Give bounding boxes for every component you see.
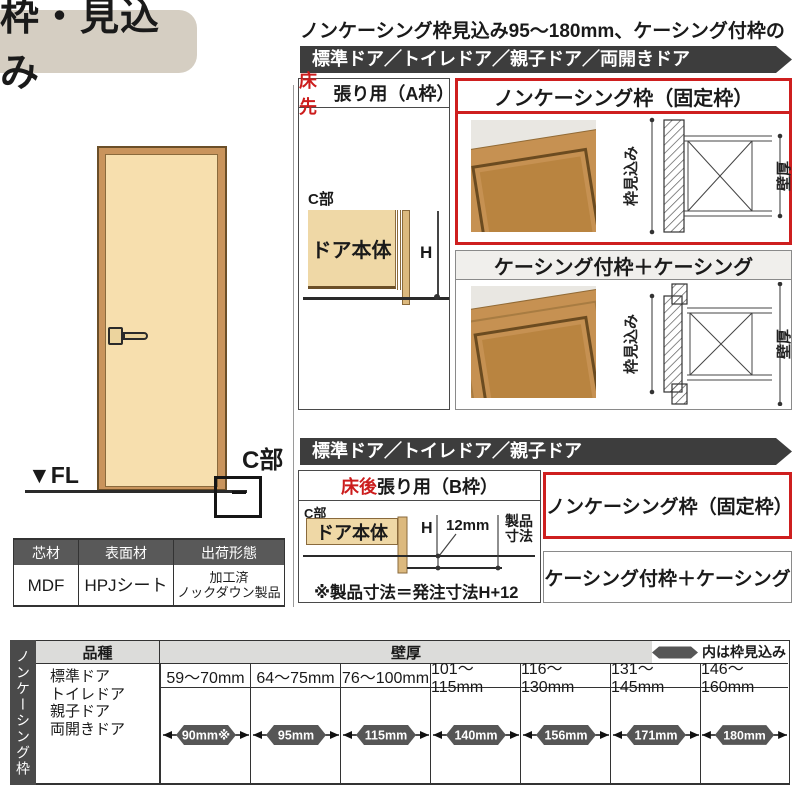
material-header-core: 芯材 — [13, 540, 79, 565]
door-types-bar-top: 標準ドア／トイレドア／親子ドア／両開きドア — [300, 46, 792, 73]
section-a-header-rest: 張り用（A枠） — [333, 80, 449, 106]
depth-badge: 140mm — [432, 723, 520, 747]
frame-depth-cell: 95mm — [250, 688, 340, 783]
section-a-header-red: 床先 — [299, 67, 333, 119]
door-figure-panel — [105, 154, 218, 487]
catalog-page: 枠・見込み ノンケーシング枠見込み95～180mm、ケーシング付枠の場合 標準ド… — [0, 0, 800, 800]
wall-range-cell: 64～75mm — [250, 664, 340, 688]
section-a-door-edge — [397, 210, 401, 290]
material-shipping-value: 加工済 ノックダウン製品 — [174, 565, 285, 605]
section-a-door-body: ドア本体 — [308, 210, 396, 289]
material-table-value-row: MDF HPJシート 加工済 ノックダウン製品 — [13, 565, 285, 605]
page-title-badge: 枠・見込み — [0, 10, 197, 73]
material-surface-value: HPJシート — [79, 565, 174, 605]
frame-depth-cell: 90mm※ — [160, 688, 250, 783]
product-dim-line2: 寸法 — [505, 529, 533, 544]
material-table: 芯材 表面材 出荷形態 MDF HPJシート 加工済 ノックダウン製品 — [13, 538, 285, 607]
casing-depth-label: 枠見込み — [622, 314, 640, 374]
material-header-shipping: 出荷形態 — [174, 540, 285, 565]
depth-value: 115mm — [364, 729, 406, 743]
depth-value: 156mm — [544, 729, 587, 743]
casing-wall-label: 壁厚 — [775, 329, 792, 359]
page-title: 枠・見込み — [0, 0, 197, 98]
noncasing-frame-photo — [471, 120, 596, 232]
frame-depth-cell: 156mm — [520, 688, 610, 783]
depth-badge: 156mm — [522, 723, 610, 747]
depth-value: 90mm※ — [181, 729, 229, 743]
depth-badge: 171mm — [612, 723, 700, 747]
size-table-door-types: 標準ドア トイレドア 親子ドア 両開きドア — [36, 664, 160, 783]
c-part-outline — [214, 476, 262, 518]
noncasing-frame-title: ノンケーシング枠（固定枠） — [458, 81, 789, 114]
depth-value: 95mm — [277, 729, 313, 743]
depth-badge: 115mm — [342, 723, 430, 747]
frame-depth-cell: 115mm — [340, 688, 430, 783]
shipping-line1: 加工済 — [209, 570, 248, 585]
depth-value: 171mm — [634, 729, 677, 743]
frame-depth-cell: 171mm — [610, 688, 700, 783]
depth-value: 140mm — [454, 729, 497, 743]
frame-depth-cell: 180mm — [700, 688, 788, 783]
wall-range-cell: 101～115mm — [430, 664, 520, 688]
section-b-noncasing-box: ノンケーシング枠（固定枠） — [543, 472, 792, 539]
section-a-h-dimension-dot — [434, 294, 440, 300]
noncasing-section-diagram: 枠見込み 壁厚 — [610, 114, 792, 238]
fl-label: ▼FL — [28, 462, 79, 489]
section-a-floor-line — [303, 297, 449, 300]
size-table: 品種 壁厚 内は枠見込み 標準ドア トイレドア 親子ドア 両開きドア 59～70… — [36, 640, 790, 785]
door-handle-plate — [108, 327, 123, 345]
c-part-tick — [232, 491, 246, 494]
section-a-h-label: H — [420, 243, 432, 263]
section-a-header: 床先張り用（A枠） — [299, 79, 449, 108]
size-table-side-label: ノンケーシング枠 — [10, 640, 36, 785]
section-b-casing-box: ケーシング付枠＋ケーシング — [543, 551, 792, 603]
section-b-h-label: H — [421, 520, 433, 538]
section-b-noncasing-label: ノンケーシング枠（固定枠） — [546, 492, 789, 519]
casing-frame-title: ケーシング付枠＋ケーシング — [456, 251, 791, 280]
wall-range-cell: 59～70mm — [160, 664, 250, 688]
section-b-casing-label: ケーシング付枠＋ケーシング — [544, 564, 790, 591]
noncasing-depth-label: 枠見込み — [622, 146, 640, 206]
material-core-value: MDF — [13, 565, 79, 605]
section-b-header-rest: 張り用（B枠） — [377, 473, 498, 499]
size-table-kind-header: 品種 — [36, 641, 160, 664]
door-type-toilet: トイレドア — [50, 686, 159, 704]
section-b-door-body: ドア本体 — [306, 518, 398, 545]
door-type-standard: 標準ドア — [50, 668, 159, 686]
section-a-c-label: C部 — [308, 188, 334, 209]
section-b-header-red: 床後 — [341, 473, 377, 499]
c-part-label: C部 — [242, 440, 283, 475]
depth-badge: 95mm — [252, 723, 340, 747]
casing-frame-photo — [471, 286, 596, 398]
material-table-header-row: 芯材 表面材 出荷形態 — [13, 540, 285, 565]
wall-range-cell: 146～160mm — [700, 664, 788, 688]
section-b-product-dim-label: 製品 寸法 — [505, 514, 533, 544]
section-b-note: ※製品寸法＝発注寸法H+12 — [314, 579, 518, 603]
frame-depth-cell: 140mm — [430, 688, 520, 783]
section-b-12mm-label: 12mm — [446, 517, 489, 534]
wall-range-cell: 76～100mm — [340, 664, 430, 688]
column-divider — [293, 85, 294, 607]
casing-section-diagram: 枠見込み 壁厚 — [610, 282, 792, 406]
depth-value: 180mm — [723, 728, 766, 742]
section-a-frame-strip — [402, 210, 410, 305]
wall-range-cell: 116～130mm — [520, 664, 610, 688]
door-handle-lever-icon — [123, 332, 148, 340]
wall-range-cell: 131～145mm — [610, 664, 700, 688]
depth-badge: 180mm — [701, 723, 788, 747]
section-b-header: 床後張り用（B枠） — [299, 471, 540, 501]
noncasing-wall-label: 壁厚 — [775, 161, 792, 191]
shipping-line2: ノックダウン製品 — [177, 585, 280, 600]
door-type-parent-child: 親子ドア — [50, 703, 159, 721]
product-dim-line1: 製品 — [505, 514, 533, 529]
section-a-h-dimension-line — [437, 211, 439, 298]
door-type-double: 両開きドア — [50, 721, 159, 739]
depth-badge: 90mm※ — [162, 723, 250, 747]
material-header-surface: 表面材 — [79, 540, 174, 565]
door-types-bar-middle: 標準ドア／トイレドア／親子ドア — [300, 438, 792, 465]
